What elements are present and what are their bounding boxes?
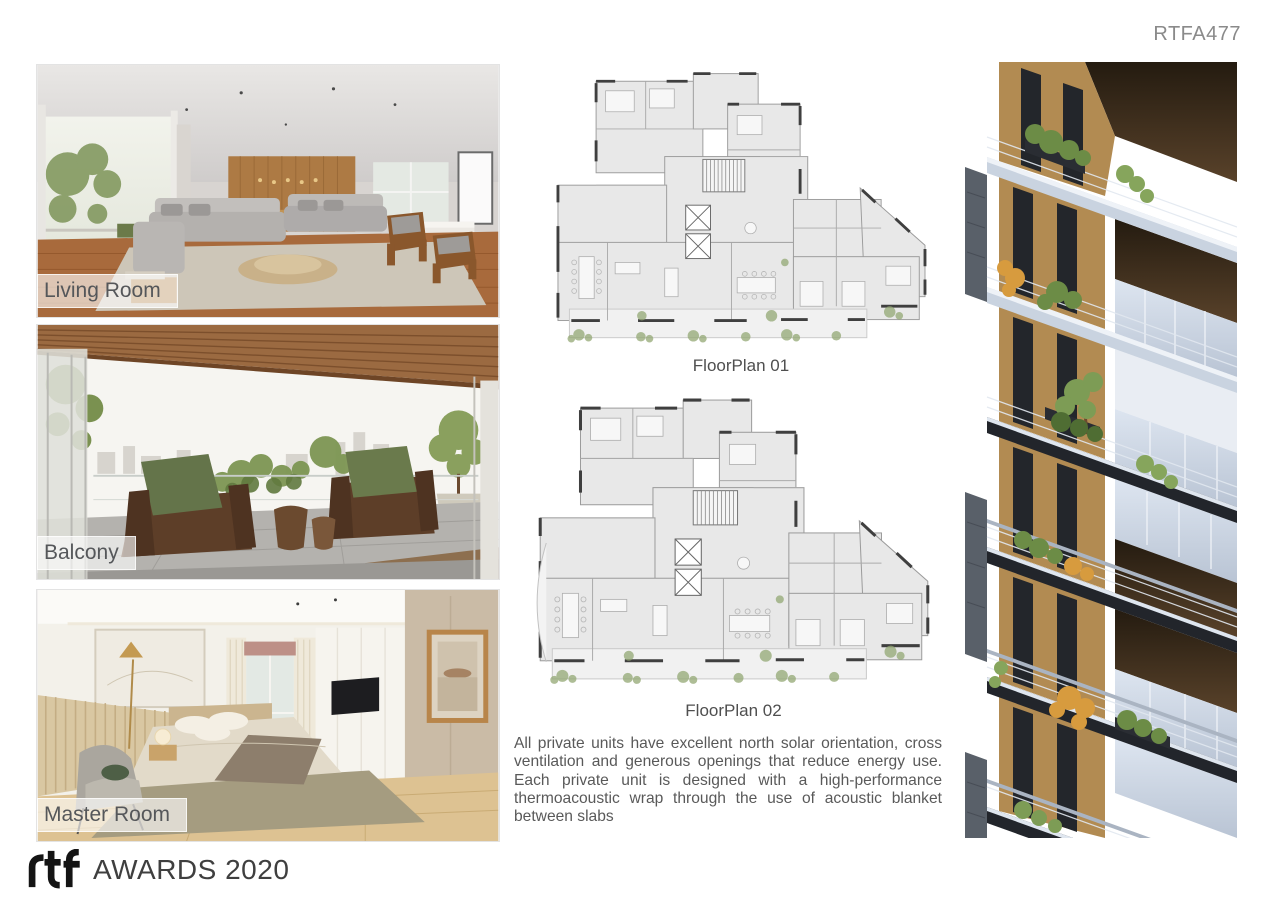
master-room-photo: Master Room — [36, 589, 500, 842]
footer-awards-label: AWARDS 2020 — [93, 854, 289, 886]
facade-render — [965, 62, 1237, 838]
photo-label-master-room: Master Room — [37, 798, 187, 832]
footer: AWARDS 2020 — [25, 849, 289, 889]
rtf-logo-icon — [25, 849, 83, 889]
living-room-photo: Living Room — [36, 64, 500, 318]
entry-code: RTFA477 — [1153, 23, 1241, 46]
facade-photo — [965, 62, 1237, 838]
photo-label-balcony: Balcony — [37, 536, 136, 570]
floorplan-01-drawing — [545, 66, 937, 352]
project-description: All private units have excellent north s… — [514, 735, 942, 826]
floorplan-02-drawing — [527, 392, 940, 694]
floorplan-02-caption: FloorPlan 02 — [527, 701, 940, 721]
balcony-photo: Balcony — [36, 324, 500, 580]
floorplan-01-caption: FloorPlan 01 — [545, 356, 937, 376]
photo-label-living-room: Living Room — [37, 274, 178, 308]
